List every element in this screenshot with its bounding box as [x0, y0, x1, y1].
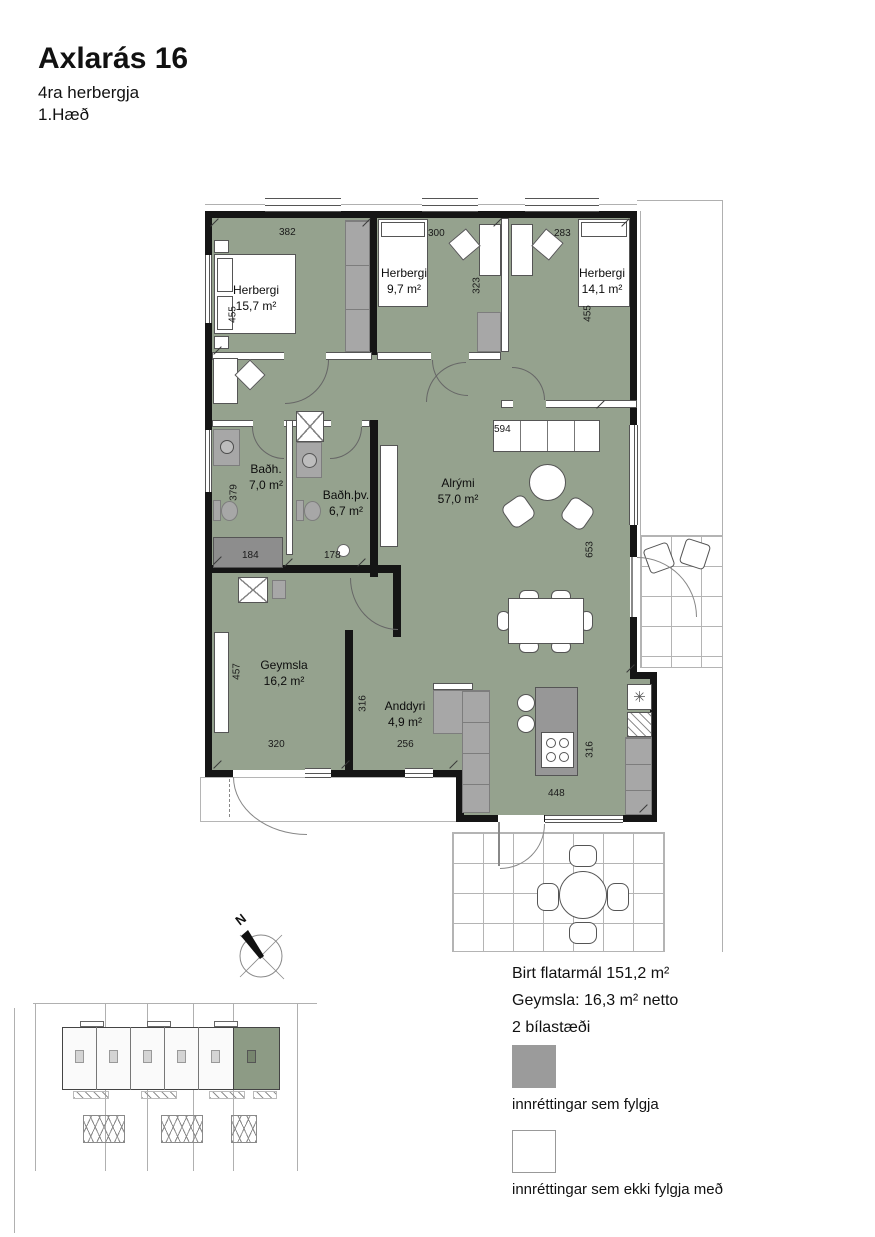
room-area: 9,7 m²	[354, 282, 454, 298]
dimension-label: 316	[585, 737, 596, 763]
closet-top	[433, 683, 473, 690]
floor-label: 1.Hæð	[38, 104, 188, 126]
window	[265, 198, 341, 212]
room-area: 6,7 m²	[296, 504, 396, 520]
dimension-label: 455	[583, 301, 594, 327]
cooktop	[541, 732, 574, 768]
dimension-label: 448	[548, 788, 565, 799]
page-subtitle: 4ra herbergja	[38, 82, 188, 104]
patio-chair	[569, 845, 597, 867]
round-table	[529, 464, 566, 501]
room-area: 16,2 m²	[234, 674, 334, 690]
room-name: Herbergi	[206, 283, 306, 299]
site-stair	[177, 1050, 186, 1063]
burner	[546, 738, 556, 748]
page-edge-line	[14, 1008, 15, 1233]
site-plan	[25, 995, 317, 1210]
burner	[559, 738, 569, 748]
info-storage-area: Geymsla: 16,3 m² netto	[512, 987, 678, 1014]
site-line	[35, 1003, 36, 1171]
entrance-door-opening	[233, 770, 307, 777]
site-unit-divider	[130, 1027, 131, 1090]
pillow	[581, 222, 627, 237]
room-label-geymsla: Geymsla 16,2 m²	[234, 658, 334, 689]
compass-icon	[226, 918, 296, 988]
window	[629, 425, 638, 525]
wall-segment	[630, 617, 637, 679]
door-leaf	[631, 557, 633, 617]
wall-segment	[630, 525, 637, 557]
utility-box	[272, 580, 286, 599]
window	[205, 430, 212, 492]
site-stair	[247, 1050, 256, 1063]
room-label-anddyri: Anddyri 4,9 m²	[360, 699, 450, 730]
site-porch	[209, 1091, 245, 1099]
room-label-herbergi-1: Herbergi 15,7 m²	[206, 283, 306, 314]
dimension-label: 316	[358, 691, 369, 717]
stool	[517, 694, 535, 712]
desk	[213, 358, 238, 404]
shower	[213, 429, 240, 466]
wall-segment	[345, 630, 353, 777]
door-opening	[513, 399, 546, 409]
wardrobe	[477, 312, 501, 352]
site-stair	[109, 1050, 118, 1063]
site-porch	[73, 1091, 109, 1099]
window	[422, 198, 478, 212]
entrance-door-track	[229, 779, 231, 817]
room-area: 57,0 m²	[408, 492, 508, 508]
patio-chair	[607, 883, 629, 911]
room-name: Geymsla	[234, 658, 334, 674]
dimension-label: 382	[279, 227, 296, 238]
site-line	[297, 1003, 298, 1171]
site-entry-bay	[147, 1021, 171, 1027]
shelving	[214, 632, 229, 733]
info-total-area: Birt flatarmál 151,2 m²	[512, 960, 678, 987]
window	[405, 768, 433, 778]
corner-sink	[296, 411, 324, 442]
wall-segment	[630, 211, 637, 425]
neighbor-line	[637, 200, 723, 201]
info-parking: 2 bílastæði	[512, 1014, 678, 1041]
room-name: Baðh.þv.	[296, 488, 396, 504]
dimension-label: 300	[428, 228, 445, 239]
room-area: 4,9 m²	[360, 715, 450, 731]
dining-table	[508, 598, 584, 644]
room-label-badh-thv: Baðh.þv. 6,7 m²	[296, 488, 396, 519]
room-label-herbergi-3: Herbergi 14,1 m²	[552, 266, 652, 297]
dimension-label: 323	[472, 273, 483, 299]
legend-swatch-included	[512, 1045, 556, 1088]
floorplan-sheet: Axlarás 16 4ra herbergja 1.Hæð	[0, 0, 875, 1237]
nightstand	[214, 240, 229, 253]
extractor-symbol: ✳	[627, 684, 652, 710]
legend-swatch-not-included	[512, 1130, 556, 1173]
room-name: Baðh.	[216, 462, 316, 478]
appliance	[627, 712, 652, 737]
dimension-label: 178	[324, 550, 341, 561]
legend-label-not-included: innréttingar sem ekki fylgja með	[512, 1181, 723, 1198]
info-block: Birt flatarmál 151,2 m² Geymsla: 16,3 m²…	[512, 960, 678, 1041]
utility-sink	[238, 577, 268, 603]
site-unit-divider	[164, 1027, 165, 1090]
dimension-label: 256	[397, 739, 414, 750]
window	[305, 768, 331, 778]
site-porch	[141, 1091, 177, 1099]
site-entry-bay	[80, 1021, 104, 1027]
facade-line	[640, 211, 641, 535]
room-label-herbergi-2: Herbergi 9,7 m²	[354, 266, 454, 297]
dimension-label: 457	[232, 659, 243, 685]
site-stair	[211, 1050, 220, 1063]
shower-drain	[220, 440, 234, 454]
legend-label-included: innréttingar sem fylgja	[512, 1096, 659, 1113]
room-area: 15,7 m²	[206, 299, 306, 315]
patio-door-opening	[498, 815, 544, 823]
site-driveway	[83, 1115, 125, 1143]
site-driveway	[161, 1115, 203, 1143]
dimension-label: 283	[554, 228, 571, 239]
dimension-label: 379	[229, 480, 240, 506]
burner	[546, 752, 556, 762]
page-title: Axlarás 16	[38, 42, 188, 75]
kitchen-counter	[625, 737, 652, 815]
dimension-label: 653	[585, 537, 596, 563]
window	[545, 815, 623, 823]
room-label-alrymi: Alrými 57,0 m²	[408, 476, 508, 507]
wall-segment	[205, 211, 637, 218]
desk	[511, 224, 533, 276]
window	[525, 198, 599, 212]
site-line	[33, 1003, 317, 1004]
patio-chair	[537, 883, 559, 911]
tall-cabinets	[462, 690, 490, 813]
door-swing-arc	[233, 777, 307, 835]
desk	[479, 224, 501, 276]
pillow	[381, 222, 425, 237]
burner	[559, 752, 569, 762]
site-driveway	[231, 1115, 257, 1143]
patio-table	[559, 871, 607, 919]
dimension-label: 594	[494, 424, 511, 435]
dimension-label: 320	[268, 739, 285, 750]
title-block: Axlarás 16 4ra herbergja 1.Hæð	[38, 42, 188, 126]
room-name: Herbergi	[354, 266, 454, 282]
room-name: Anddyri	[360, 699, 450, 715]
toilet	[213, 500, 221, 521]
dimension-label: 455	[228, 302, 239, 328]
patio-chair	[569, 922, 597, 944]
stool	[517, 715, 535, 733]
partition-wall	[501, 218, 509, 352]
site-unit-divider	[198, 1027, 199, 1090]
room-name: Herbergi	[552, 266, 652, 282]
site-highlighted-unit	[233, 1027, 280, 1090]
dimension-label: 184	[242, 550, 259, 561]
site-unit-divider	[96, 1027, 97, 1090]
site-porch	[253, 1091, 277, 1099]
site-stair	[143, 1050, 152, 1063]
room-area: 14,1 m²	[552, 282, 652, 298]
room-name: Alrými	[408, 476, 508, 492]
site-stair	[75, 1050, 84, 1063]
